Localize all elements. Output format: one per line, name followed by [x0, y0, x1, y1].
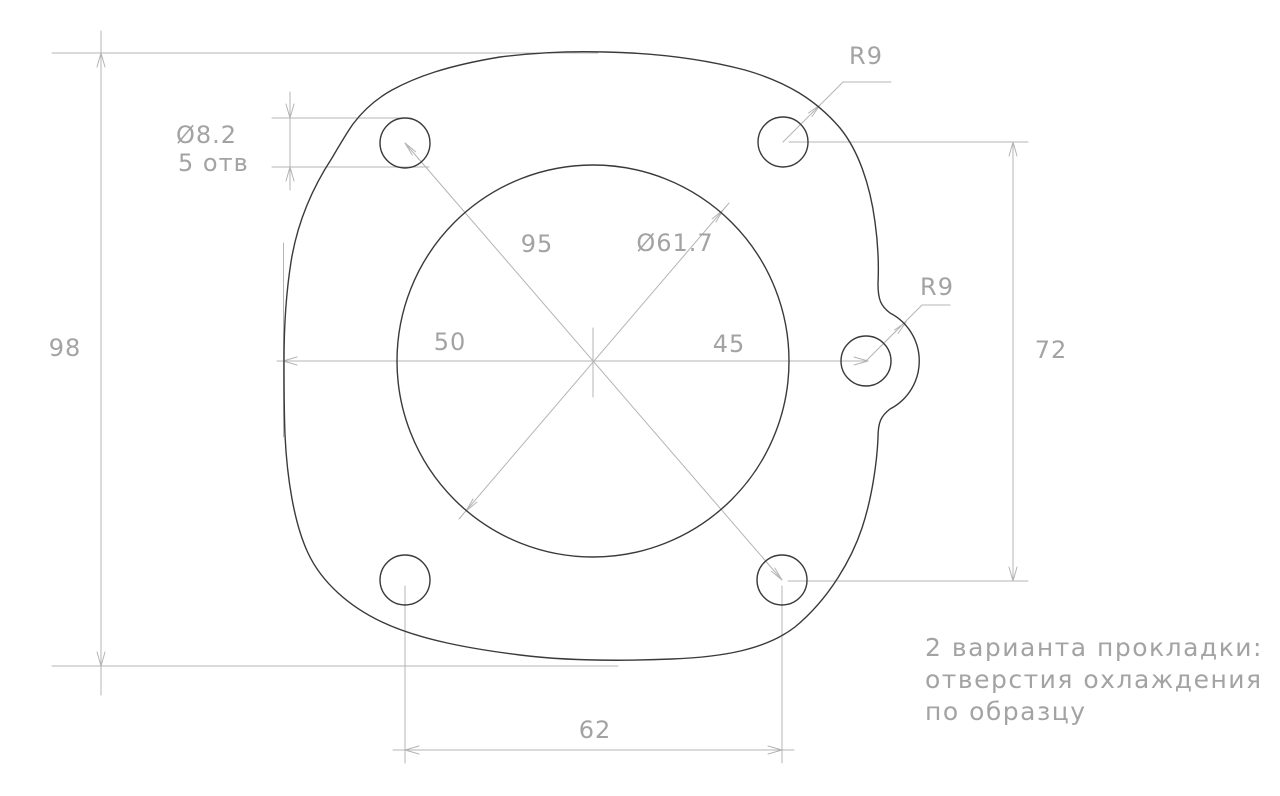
note-line-1: 2 варианта прокладки: — [925, 633, 1263, 662]
label-side-boss-radius: R9 — [920, 273, 954, 301]
part-geometry — [284, 52, 919, 661]
leader-r9-top — [783, 82, 891, 142]
gasket-outline — [284, 52, 919, 661]
label-hole-diameter: Ø8.2 — [176, 121, 237, 149]
label-center-to-side-hole: 45 — [713, 330, 746, 358]
note-block: 2 варианта прокладки: отверстия охлажден… — [925, 633, 1263, 726]
label-side-holes-spacing: 72 — [1035, 336, 1068, 364]
label-overall-height: 98 — [49, 334, 82, 362]
note-line-3: по образцу — [925, 697, 1087, 726]
label-center-to-left-edge: 50 — [434, 328, 467, 356]
technical-drawing-page: 98 Ø8.2 5 отв 95 Ø61.7 50 45 72 62 R9 R9… — [0, 0, 1280, 796]
label-hole-count: 5 отв — [178, 149, 249, 177]
label-top-corner-radius: R9 — [849, 42, 883, 70]
dimension-labels: 98 Ø8.2 5 отв 95 Ø61.7 50 45 72 62 R9 R9 — [49, 42, 1068, 744]
note-line-2: отверстия охлаждения — [925, 665, 1263, 694]
label-bottom-holes-spacing: 62 — [579, 716, 612, 744]
label-center-circle-diameter: Ø61.7 — [636, 229, 713, 257]
label-bolt-circle: 95 — [521, 230, 554, 258]
gasket-drawing: 98 Ø8.2 5 отв 95 Ø61.7 50 45 72 62 R9 R9… — [0, 0, 1280, 796]
leader-r9-side — [866, 305, 950, 361]
